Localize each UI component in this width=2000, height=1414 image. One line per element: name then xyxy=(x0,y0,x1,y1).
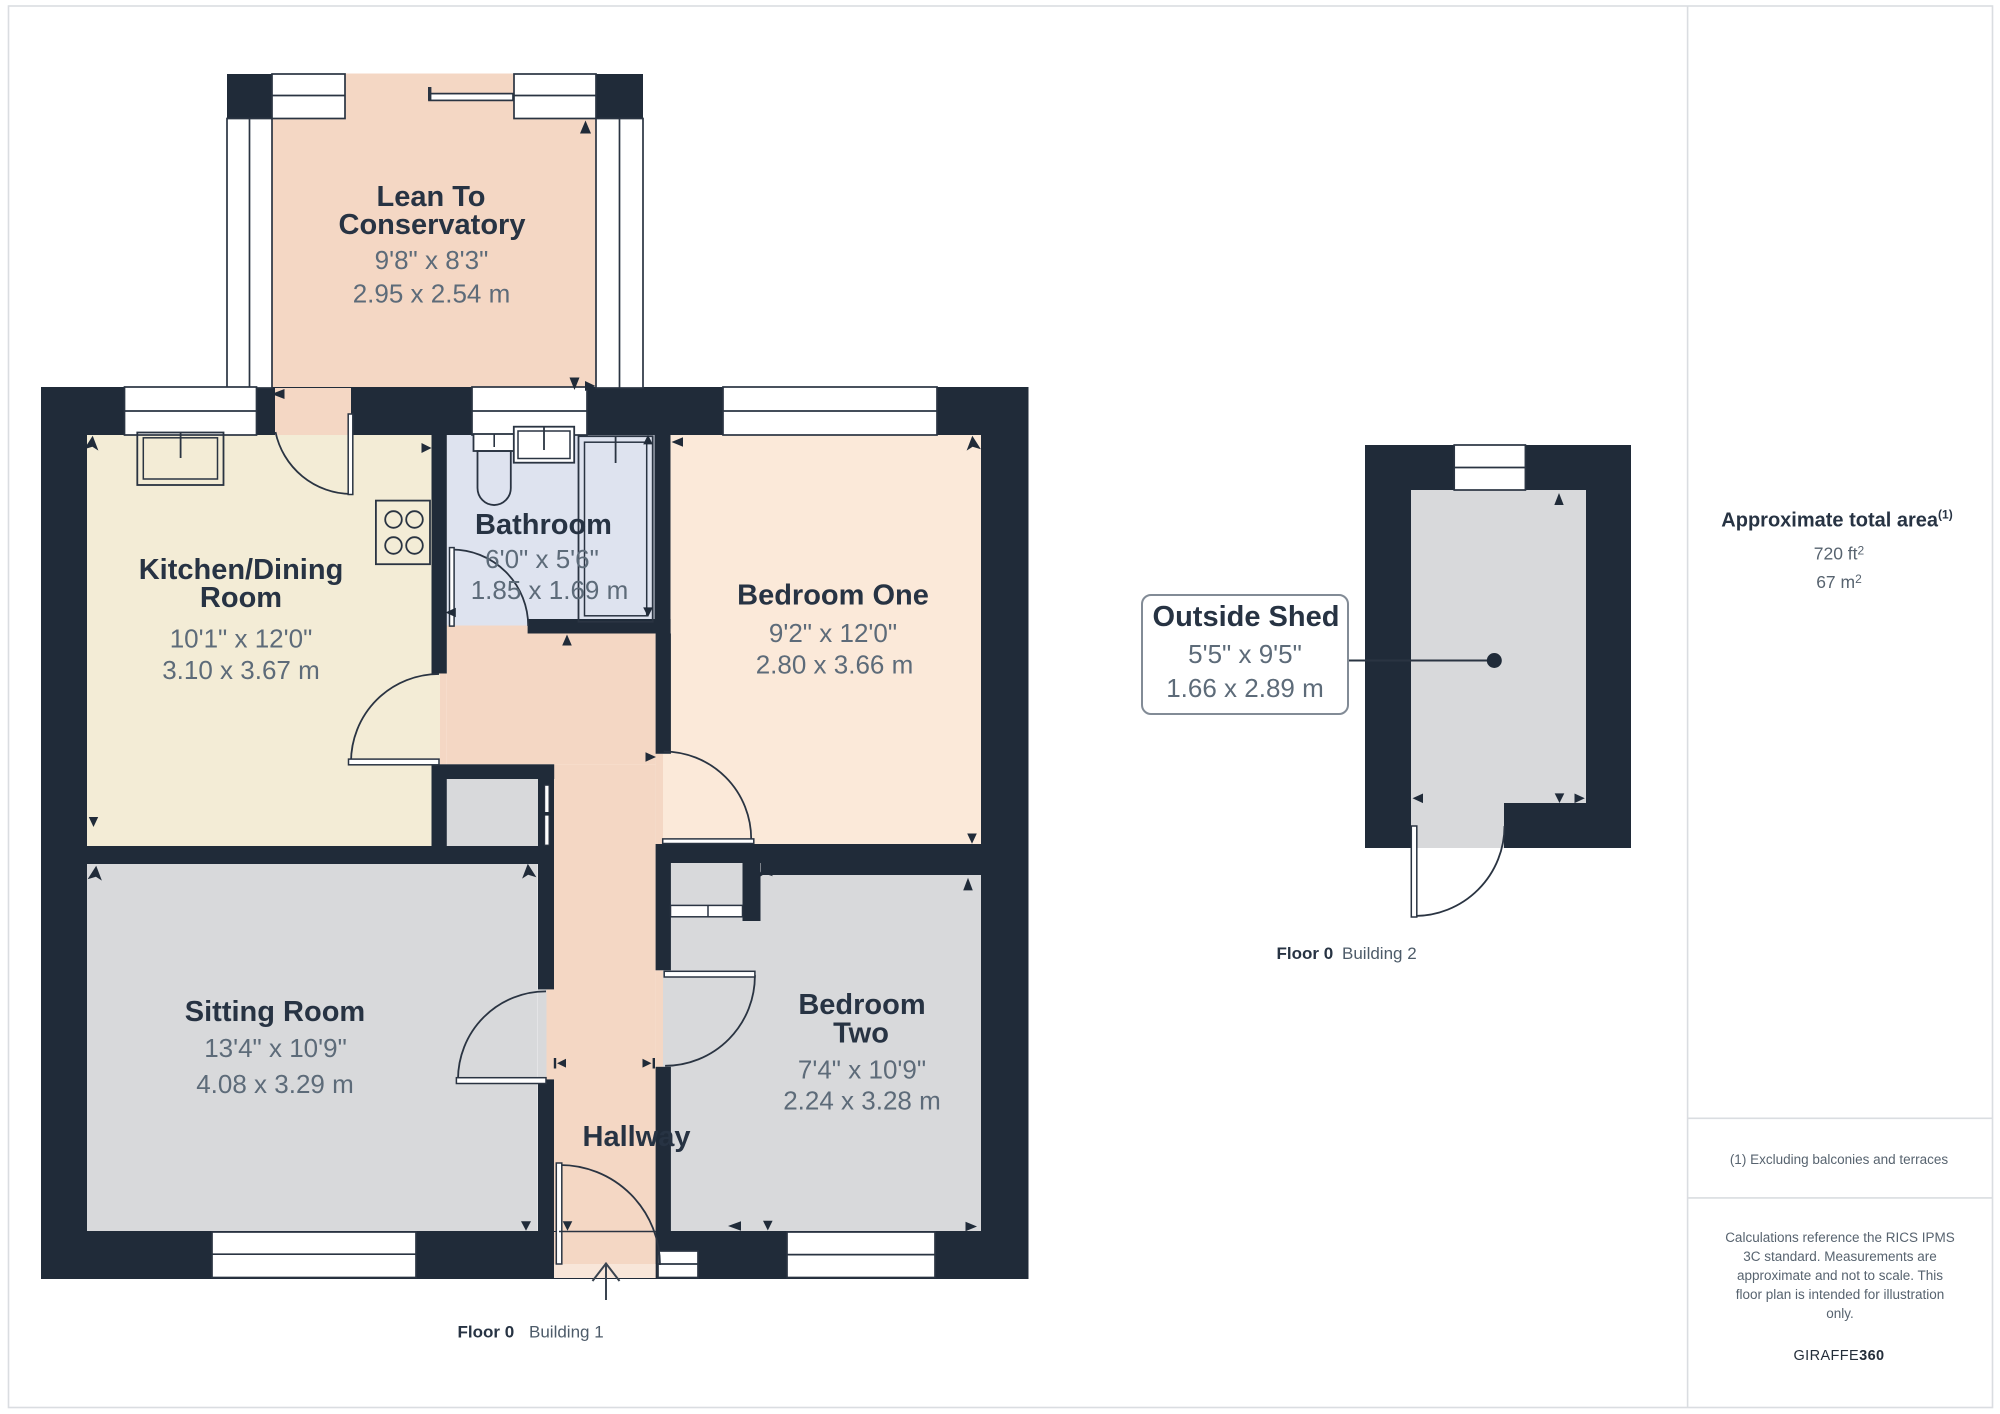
svg-text:Bedroom: Bedroom xyxy=(798,989,925,1021)
svg-text:Two: Two xyxy=(833,1018,889,1050)
svg-text:Building 1: Building 1 xyxy=(529,1323,604,1342)
svg-text:Outside Shed: Outside Shed xyxy=(1153,601,1340,633)
svg-text:Building 2: Building 2 xyxy=(1342,944,1417,963)
svg-text:1.66 x 2.89 m: 1.66 x 2.89 m xyxy=(1166,673,1324,703)
svg-text:Sitting Room: Sitting Room xyxy=(185,996,365,1028)
svg-text:2.80 x 3.66 m: 2.80 x 3.66 m xyxy=(756,650,914,680)
svg-text:9'8" x 8'3": 9'8" x 8'3" xyxy=(375,245,489,275)
svg-text:3.10 x 3.67 m: 3.10 x 3.67 m xyxy=(162,655,320,685)
svg-text:Floor 0: Floor 0 xyxy=(458,1323,515,1342)
svg-text:1.85 x 1.69 m: 1.85 x 1.69 m xyxy=(471,575,629,605)
svg-text:Hallway: Hallway xyxy=(583,1121,691,1153)
svg-text:7'4" x 10'9": 7'4" x 10'9" xyxy=(798,1055,926,1085)
svg-text:only.: only. xyxy=(1826,1306,1854,1321)
svg-text:13'4" x 10'9": 13'4" x 10'9" xyxy=(204,1033,347,1063)
svg-text:Calculations reference the RIC: Calculations reference the RICS IPMS xyxy=(1725,1230,1955,1245)
svg-text:5'5" x 9'5": 5'5" x 9'5" xyxy=(1188,639,1302,669)
svg-text:Floor 0: Floor 0 xyxy=(1277,944,1334,963)
svg-text:2.95 x 2.54 m: 2.95 x 2.54 m xyxy=(353,279,511,309)
svg-text:Room: Room xyxy=(200,582,282,614)
svg-text:GIRAFFE360: GIRAFFE360 xyxy=(1793,1348,1884,1364)
svg-text:Conservatory: Conservatory xyxy=(339,209,526,241)
svg-text:Bathroom: Bathroom xyxy=(475,509,612,541)
svg-text:10'1" x 12'0": 10'1" x 12'0" xyxy=(170,624,313,654)
svg-text:720 ft2: 720 ft2 xyxy=(1814,544,1865,564)
svg-text:2.24 x 3.28 m: 2.24 x 3.28 m xyxy=(783,1086,941,1116)
svg-text:floor plan is intended for ill: floor plan is intended for illustration xyxy=(1736,1287,1945,1302)
svg-text:4.08 x 3.29 m: 4.08 x 3.29 m xyxy=(196,1069,354,1099)
svg-text:6'0" x 5'6": 6'0" x 5'6" xyxy=(485,544,599,574)
svg-text:(1) Excluding balconies and te: (1) Excluding balconies and terraces xyxy=(1730,1152,1949,1167)
svg-text:approximate and not to scale.: approximate and not to scale. This xyxy=(1737,1268,1943,1283)
svg-text:3C standard. Measurements are: 3C standard. Measurements are xyxy=(1743,1249,1937,1264)
svg-text:9'2" x 12'0": 9'2" x 12'0" xyxy=(769,618,897,648)
svg-text:Approximate total area(1): Approximate total area(1) xyxy=(1721,508,1952,532)
svg-text:Bedroom One: Bedroom One xyxy=(737,580,929,612)
